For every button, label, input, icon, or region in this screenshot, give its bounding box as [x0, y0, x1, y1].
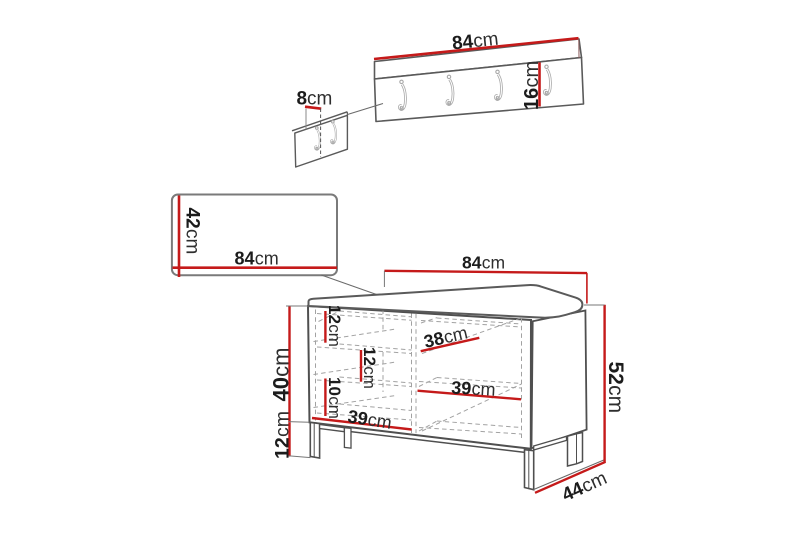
svg-text:cm: cm [182, 229, 203, 254]
svg-text:cm: cm [471, 379, 496, 400]
svg-text:84: 84 [451, 31, 475, 54]
svg-text:cm: cm [521, 61, 543, 88]
svg-text:cm: cm [482, 253, 505, 273]
svg-text:cm: cm [269, 347, 294, 376]
svg-text:52: 52 [604, 362, 627, 385]
svg-text:cm: cm [360, 366, 379, 389]
svg-text:cm: cm [255, 248, 279, 268]
svg-text:12: 12 [360, 347, 379, 366]
svg-text:84: 84 [462, 253, 482, 273]
svg-text:cm: cm [272, 411, 294, 437]
svg-text:cm: cm [325, 324, 344, 347]
svg-text:42: 42 [182, 208, 203, 229]
svg-text:cm: cm [366, 409, 393, 433]
svg-text:39: 39 [346, 406, 369, 429]
svg-text:cm: cm [307, 89, 332, 110]
svg-text:40: 40 [269, 377, 294, 401]
svg-text:10: 10 [325, 377, 344, 396]
svg-text:12: 12 [325, 305, 344, 324]
svg-text:cm: cm [472, 29, 499, 53]
svg-text:12: 12 [272, 437, 294, 459]
svg-text:84: 84 [235, 248, 255, 268]
svg-text:39: 39 [451, 378, 472, 399]
svg-text:16: 16 [521, 88, 543, 110]
svg-text:cm: cm [604, 385, 627, 413]
svg-text:cm: cm [325, 396, 344, 419]
svg-text:8: 8 [297, 89, 308, 110]
